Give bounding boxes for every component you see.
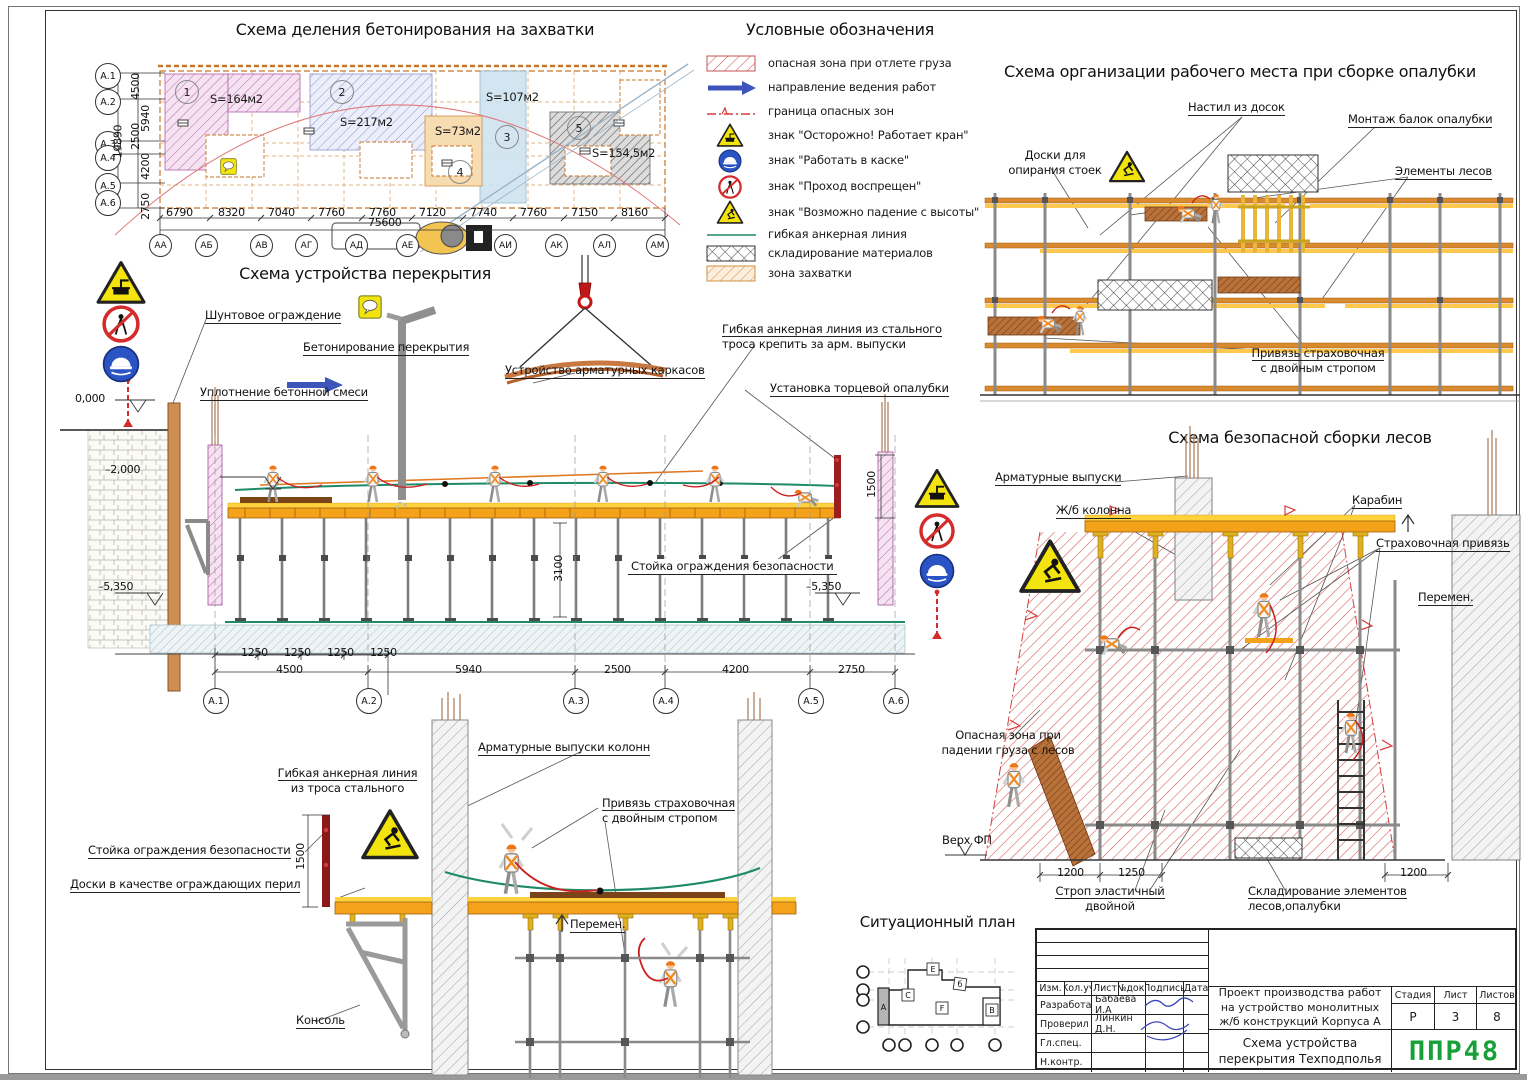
axis-a1: А.1 [95,63,121,89]
flexible-anchor-line [235,483,837,490]
label-support-boards: Доски для опирания стоек [995,148,1115,178]
label-variable-detail: Перемен. [570,917,625,933]
elevation-minus5-left: –5,350 [98,580,133,593]
label-guard-boards: Доски в качестве ограждающих перил [70,877,300,893]
label-safety-harness: Страховочная привязь [1376,536,1510,552]
situational-plan-title: Ситуационный план [850,913,1025,931]
title-block: Изм. Кол.уч Лист №док. Подпись Дата Разр… [1035,928,1517,1070]
axis-a6: А.6 [95,190,121,216]
materials-storage [1098,280,1212,310]
dim-1500-detail: 1500 [294,843,307,870]
tb-doc-title: Схема устройства перекрытия Техподполья [1209,1030,1392,1072]
dim-bot-1: 6790 [166,206,193,219]
label-variable-level: Перемен. [1418,590,1473,606]
axis-ag: АГ [295,234,318,257]
zone-1-area: S=164м2 [210,92,263,106]
dim-2500: 2500 [604,663,631,676]
label-compaction: Уплотнение бетонной смеси [200,385,368,401]
dim-1200-a: 1200 [1057,866,1084,879]
block-a-label: А [881,1003,887,1012]
worker-figure [365,466,382,502]
console-bracket [346,918,405,1032]
anchor-line-swatch [706,226,758,244]
axis-ad: АД [345,234,368,257]
label-guard-post-detail: Стойка ограждения безопасности [88,843,291,859]
tb-project: Проект производства работ на устройство … [1209,987,1392,1030]
zone-4-number: 4 [448,160,472,184]
dim-bot-9: 7150 [571,206,598,219]
dim-bot-3: 7040 [268,206,295,219]
block-e-label: Е [930,965,935,974]
crane-hook [520,255,653,367]
dim-bot-10: 8160 [621,206,648,219]
concrete-pump-pipe [402,310,435,500]
boards-on-deck [240,497,332,503]
label-rebar-outlets: Арматурные выпуски [995,470,1121,486]
capture-plan-title: Схема деления бетонирования на захватки [180,20,650,39]
dim-1250-2: 1250 [284,646,311,659]
dim-left-4: 4200 [139,153,152,180]
label-decking: Настил из досок [1188,100,1285,116]
dim-1500-slab: 1500 [865,471,878,498]
tb-header-list: Лист [1092,982,1119,996]
block-f-label: F [940,1004,945,1013]
dim-1250-b: 1250 [1118,866,1145,879]
rc-column [1175,478,1212,600]
label-guard-post: Стойка ограждения безопасности [628,559,837,575]
axis-ab: АБ [195,234,218,257]
block-c-label: С [905,991,911,1000]
label-double-lanyard-harness: Привязь страховочная с двойным стропом [1218,346,1418,376]
axis-ae: АЕ [396,234,419,257]
tb-sheet-value: 3 [1435,1004,1477,1030]
label-elastic-sling: Строп эластичный двойной [1040,884,1180,914]
label-rc-column: Ж/б колонна [1056,503,1131,519]
zone-3-number: 3 [495,125,519,149]
helmet-sign-icon [104,347,139,382]
tb-role-developed: Разработал [1037,996,1092,1015]
materials-storage [1228,155,1318,192]
formwork-beam [1085,521,1395,532]
axis-a2: А.2 [95,89,121,115]
dim-bot-8: 7760 [520,206,547,219]
fall-warning-sign-icon [1110,152,1144,181]
zone-2-hatch [310,74,432,150]
label-harness-detail: Привязь страховочная с двойным стропом [602,796,735,826]
flexible-anchor-line [445,868,760,890]
danger-boundary-swatch [706,103,758,121]
legend-title: Условные обозначения [745,20,935,39]
tb-sheet-label: Лист [1435,987,1477,1004]
label-end-formwork: Установка торцевой опалубки [770,381,949,397]
dim-4500: 4500 [276,663,303,676]
dim-1250-3: 1250 [327,646,354,659]
dim-2750: 2750 [838,663,865,676]
tb-role-ncontrol: Н.контр. [1037,1053,1092,1072]
label-anchor-line: Гибкая анкерная линия из стального троса… [722,322,942,352]
dim-1250-1: 1250 [241,646,268,659]
tb-role-checked: Проверил [1037,1015,1092,1034]
rc-column [738,720,772,1075]
zone-1-number: 1 [175,80,199,104]
dim-left-total: 19890 [111,125,124,159]
dim-1250-4: 1250 [370,646,397,659]
formwork-deck [335,897,796,914]
ppr48-logo: ППР48 [1409,1036,1500,1067]
tb-stage-value: Р [1392,1004,1435,1030]
no-entry-sign-icon [104,307,138,341]
zone-2-number: 2 [330,80,354,104]
label-elements-storage: Складирование элементов лесов,опалубки [1248,884,1407,914]
helmet-zone-sign-icon [221,159,237,175]
tb-logo-cell: ППР48 [1392,1030,1517,1072]
elevation-minus5-right: –5,350 [806,580,841,593]
zone-2-area: S=217м2 [340,115,393,129]
dim-5940: 5940 [455,663,482,676]
dim-bot-7: 7740 [470,206,497,219]
axis-al: АЛ [593,234,616,257]
label-console: Консоль [296,1013,345,1029]
dim-1200-c: 1200 [1400,866,1427,879]
label-carabiner: Карабин [1352,493,1402,509]
tb-sheets-value: 8 [1477,1004,1517,1030]
scaffold-scheme-drawing [940,420,1520,920]
label-anchor-cable: Гибкая анкерная линия из троса стального [250,766,445,796]
axis-ai: АИ [494,234,517,257]
label-sheet-pile: Шунтовое ограждение [205,308,341,324]
direction-arrow-icon [706,79,758,97]
tb-header-koluch: Кол.уч [1065,982,1092,996]
tb-header-izm: Изм. [1037,982,1065,996]
rc-wall [1452,515,1520,860]
axis-ak: АК [545,234,568,257]
zone-5-number: 5 [567,116,591,140]
helmet-sign-icon [714,148,766,174]
no-entry-sign-icon [714,174,766,200]
dim-3100: 3100 [552,555,565,582]
formwork-scheme-title: Схема организации рабочего места при сбо… [985,62,1495,81]
zone-4-area: S=73м2 [435,124,481,138]
tb-stage-label: Стадия [1392,987,1435,1004]
label-top-fp: Верх ФП [942,833,992,848]
axis-aa: АА [149,234,172,257]
dim-bot-6: 7120 [419,206,446,219]
crane-warning-sign-icon [98,263,144,303]
axis-av: АВ [250,234,273,257]
dim-left-3: 2500 [129,123,142,150]
danger-zone-swatch [706,55,758,73]
dim-bot-total: 75600 [368,216,402,229]
elevation-zero: 0,000 [75,392,105,405]
axis-slab-a6: А.6 [883,688,909,714]
dim-bot-4: 7760 [318,206,345,219]
materials-storage [1235,838,1302,858]
label-column-rebar: Арматурные выпуски колонн [478,740,650,756]
label-concreting: Бетонирование перекрытия [303,340,469,356]
elevation-minus2: –2,000 [105,463,140,476]
formwork-deck [228,503,840,508]
dim-left-1: 4500 [129,73,142,100]
label-scaffold-elements: Элементы лесов [1395,164,1492,180]
helmet-zone-sign-icon [359,296,381,318]
label-beam-install: Монтаж балок опалубки [1348,112,1492,128]
label-scaffold-danger-zone: Опасная зона при падении груза с лесов [938,728,1078,758]
block-v-label: В [989,1006,995,1015]
dim-4200: 4200 [722,663,749,676]
fall-warning-sign-icon [363,811,417,858]
crane-warning-sign-icon [714,123,766,149]
tb-role-chief: Гл.спец. [1037,1034,1092,1053]
drawing-sheet: Схема деления бетонирования на захватки [0,0,1527,1080]
zone-3-area: S=107м2 [486,90,539,104]
fall-warning-sign-icon [714,200,766,226]
worker-figure [660,961,681,1006]
label-rebar-cages: Устройство арматурных каркасов [505,363,705,379]
zone-5-area: S=154,5м2 [592,146,655,160]
situational-plan-drawing: Е б С F В А [850,950,1025,1070]
dim-bot-2: 8320 [218,206,245,219]
block-b-label: б [958,980,963,989]
axis-am: АМ [646,234,669,257]
dim-left-5: 2750 [139,193,152,220]
tb-sheets-label: Листов [1477,987,1517,1004]
signature-strokes [1137,992,1207,1052]
